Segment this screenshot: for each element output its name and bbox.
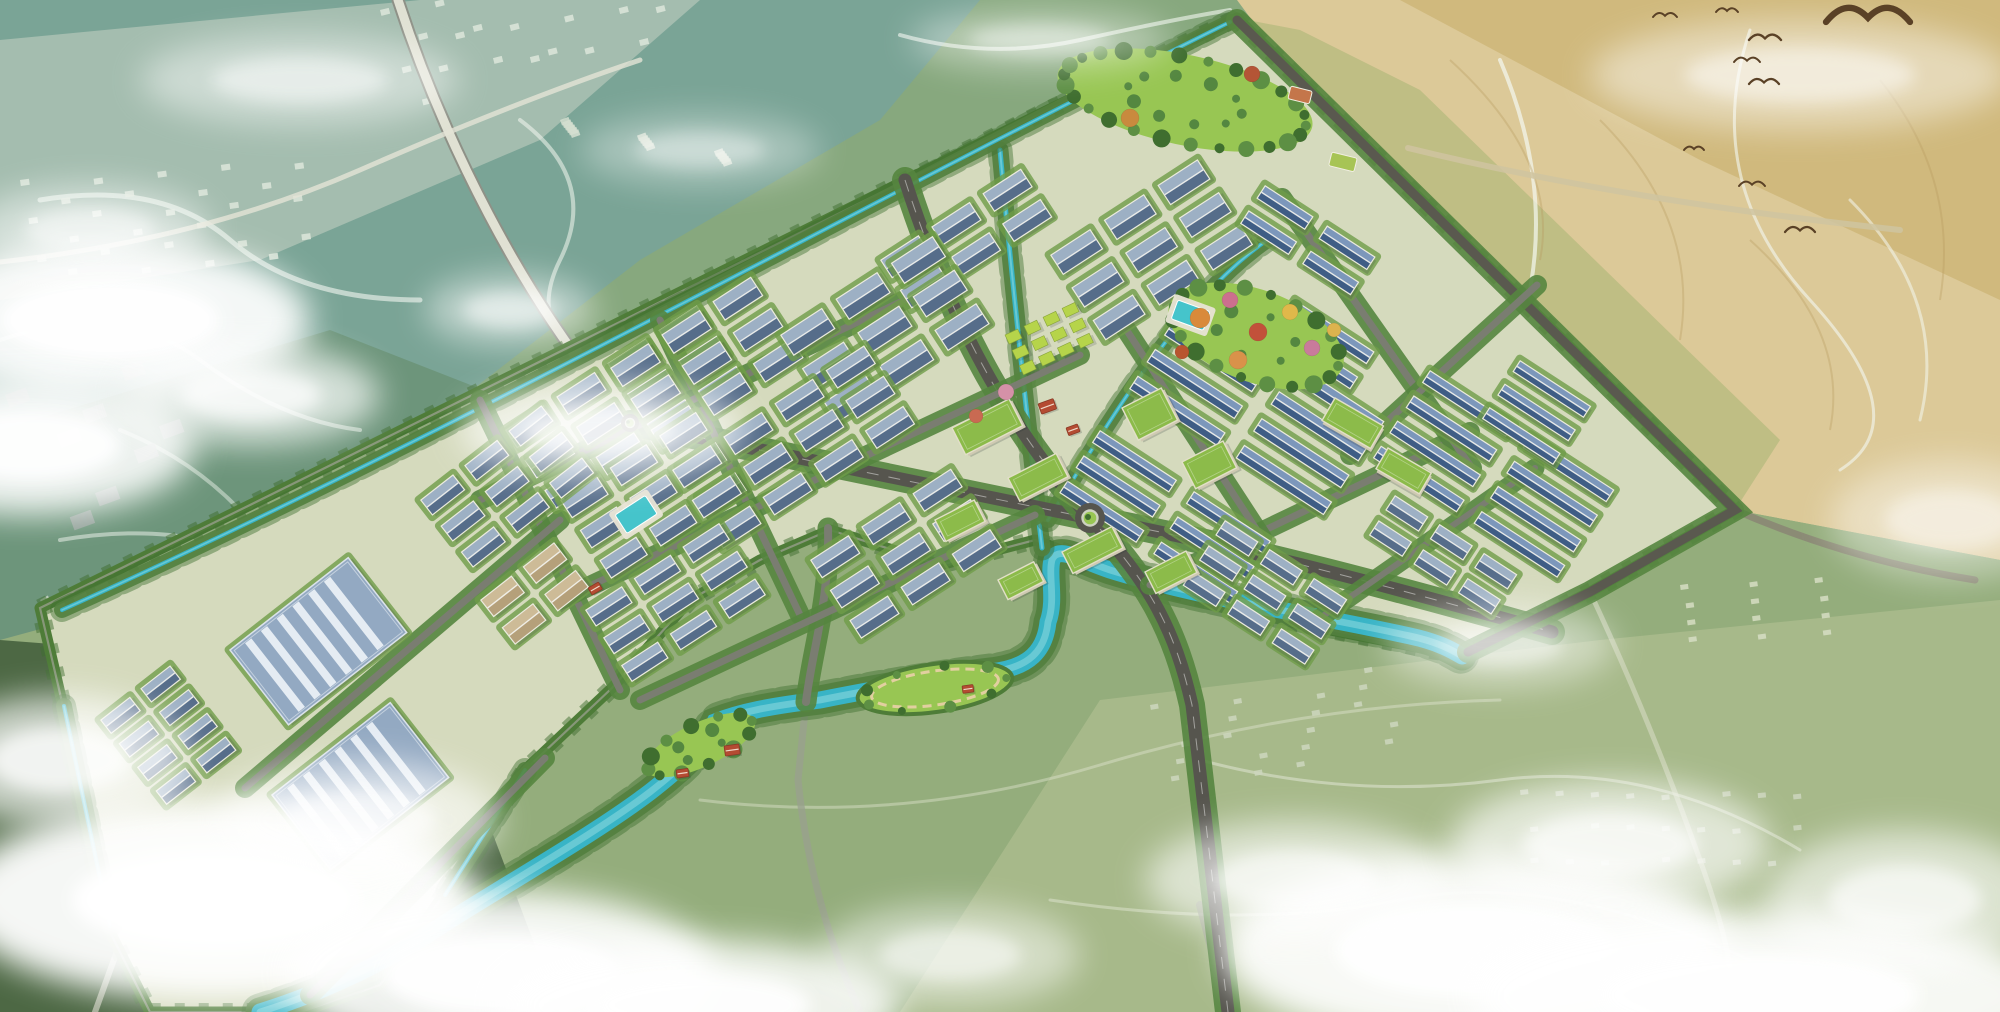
hamlet-building [269,253,279,260]
cloud-core-15 [1522,813,1698,878]
pavilion-2 [724,744,742,758]
ornamental-tree-7 [1327,323,1341,337]
hamlet-building [1793,794,1801,800]
cloud-core-17 [1437,624,1564,666]
ornamental-tree-10 [1121,109,1139,127]
cloud-core-20 [1685,48,1916,103]
hamlet-building [221,164,231,171]
hamlet-building [229,202,239,209]
ornamental-tree-4 [1229,351,1247,369]
hamlet-building [198,189,208,196]
cloud-core-16 [1828,865,1982,935]
ornamental-tree-11 [1244,66,1260,82]
cloud-core-9 [283,790,437,850]
roundabout-tree [1085,514,1091,520]
ornamental-tree-3 [1282,304,1298,320]
cloud-core-2 [179,370,322,420]
hamlet-building [1758,792,1766,798]
hamlet-building [301,233,311,240]
ornamental-tree-0 [1190,308,1210,328]
hamlet-building [262,182,272,189]
ornamental-tree-5 [1304,340,1320,356]
ornamental-tree-8 [998,384,1014,400]
cloud-core-22 [634,133,766,168]
cloud-core-14 [1213,850,1378,910]
hamlet-building [20,179,30,186]
hamlet-building [1768,861,1776,867]
masterplan-scene [0,0,2000,1012]
cloud-core-0 [0,280,220,360]
hamlet-building [1722,791,1730,797]
hamlet-building [157,171,167,178]
cloud-core-3 [24,208,156,253]
cloud-core-5 [463,293,557,328]
cloud-core-19 [969,25,1112,55]
roundabout-0 [1075,503,1105,533]
hamlet-building [294,162,304,169]
ornamental-tree-2 [1249,323,1267,341]
cloud-core-11 [879,930,1022,980]
cloud-core-21 [212,58,388,103]
ornamental-tree-9 [969,409,983,423]
ornamental-tree-1 [1222,292,1238,308]
ornamental-tree-6 [1175,345,1189,359]
hamlet-building [1793,825,1801,831]
hamlet-building [94,178,104,185]
aerial-masterplan-rendering [0,0,2000,1012]
cloud-core-4 [523,405,677,455]
hamlet-building [238,240,248,247]
